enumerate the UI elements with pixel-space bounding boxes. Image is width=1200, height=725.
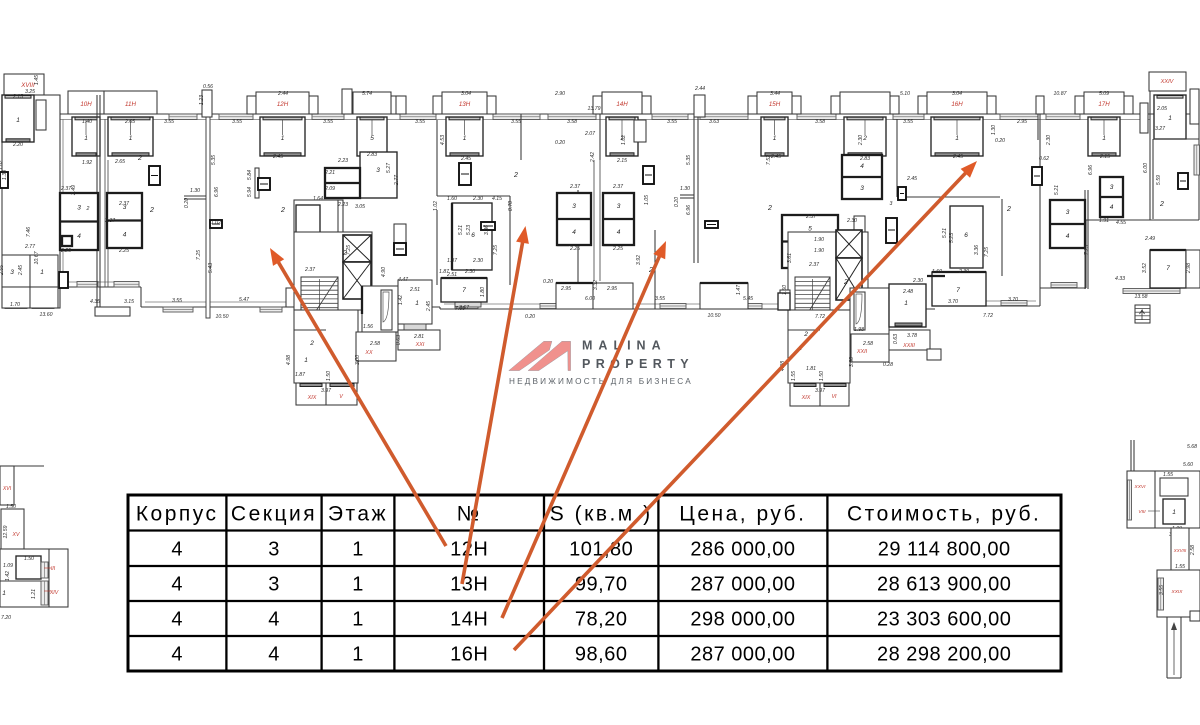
svg-text:1.80: 1.80 — [480, 287, 486, 297]
svg-text:1.81: 1.81 — [806, 366, 816, 372]
svg-text:Цена, руб.: Цена, руб. — [679, 502, 806, 525]
svg-text:4.15: 4.15 — [492, 196, 502, 202]
svg-text:3.55: 3.55 — [323, 119, 333, 125]
svg-text:1: 1 — [1102, 135, 1106, 142]
svg-text:4: 4 — [171, 574, 183, 596]
svg-text:12.59: 12.59 — [3, 525, 9, 538]
svg-text:2.58: 2.58 — [369, 341, 380, 347]
svg-text:4: 4 — [268, 609, 280, 631]
svg-text:1: 1 — [1168, 115, 1172, 122]
svg-text:1.23: 1.23 — [199, 95, 205, 105]
svg-text:2.45: 2.45 — [18, 265, 24, 276]
svg-text:2.25: 2.25 — [60, 248, 71, 254]
svg-text:3.05: 3.05 — [355, 204, 365, 210]
svg-text:3.55: 3.55 — [415, 119, 425, 125]
svg-text:3.78: 3.78 — [907, 333, 917, 339]
svg-text:2.15: 2.15 — [616, 158, 627, 164]
svg-text:4: 4 — [171, 538, 183, 560]
svg-text:5.21: 5.21 — [942, 228, 948, 238]
svg-text:1: 1 — [463, 135, 467, 142]
svg-text:5.21: 5.21 — [458, 225, 464, 235]
svg-text:1: 1 — [955, 135, 959, 142]
svg-text:0.63: 0.63 — [893, 334, 899, 344]
svg-text:2.37: 2.37 — [612, 184, 624, 190]
svg-text:2.65: 2.65 — [114, 159, 125, 165]
svg-text:4: 4 — [860, 163, 864, 170]
svg-text:7.72: 7.72 — [815, 314, 825, 320]
svg-text:1.87: 1.87 — [447, 258, 458, 264]
svg-text:1.60: 1.60 — [447, 196, 457, 202]
svg-text:10.50: 10.50 — [216, 314, 229, 320]
svg-text:7: 7 — [956, 287, 960, 294]
svg-text:5.23: 5.23 — [949, 233, 955, 243]
svg-text:1.45: 1.45 — [34, 75, 40, 85]
svg-text:3.70: 3.70 — [1008, 297, 1018, 303]
svg-text:1: 1 — [2, 590, 6, 597]
svg-text:10.87: 10.87 — [1054, 91, 1068, 97]
svg-text:1.30: 1.30 — [680, 186, 690, 192]
svg-text:1.42: 1.42 — [5, 571, 11, 581]
svg-text:2.30: 2.30 — [912, 278, 923, 284]
svg-text:7.25: 7.25 — [1084, 245, 1090, 255]
svg-text:5.60: 5.60 — [1183, 462, 1193, 468]
svg-text:7: 7 — [1166, 265, 1170, 272]
svg-text:3.00: 3.00 — [849, 357, 855, 367]
svg-text:10.67: 10.67 — [34, 250, 40, 264]
svg-text:2.30: 2.30 — [858, 135, 864, 146]
svg-text:5.27: 5.27 — [386, 162, 392, 173]
svg-text:XVIII: XVIII — [20, 82, 35, 89]
svg-text:0.20: 0.20 — [995, 138, 1005, 144]
svg-text:1.50: 1.50 — [24, 556, 34, 562]
svg-text:0.20: 0.20 — [674, 197, 680, 207]
svg-text:3.55: 3.55 — [232, 119, 242, 125]
svg-text:5.21: 5.21 — [1054, 185, 1060, 195]
svg-text:1.50: 1.50 — [782, 285, 788, 295]
svg-text:1: 1 — [352, 644, 364, 666]
svg-text:2.77: 2.77 — [24, 244, 36, 250]
svg-text:5.47: 5.47 — [239, 297, 250, 303]
svg-text:XIX: XIX — [801, 395, 811, 401]
svg-text:2.21: 2.21 — [324, 170, 335, 176]
svg-text:2: 2 — [137, 155, 142, 162]
svg-text:3.55: 3.55 — [511, 119, 521, 125]
svg-text:3.27: 3.27 — [1155, 126, 1166, 132]
svg-text:1.02: 1.02 — [621, 135, 627, 145]
svg-text:1.05: 1.05 — [644, 195, 650, 205]
svg-text:2.45: 2.45 — [906, 176, 917, 182]
svg-text:VI: VI — [831, 394, 837, 400]
svg-text:2.58: 2.58 — [1190, 545, 1196, 556]
svg-text:4: 4 — [171, 644, 183, 666]
svg-text:2.30: 2.30 — [472, 196, 483, 202]
svg-text:2.81: 2.81 — [413, 334, 424, 340]
svg-text:78,20: 78,20 — [575, 609, 628, 631]
svg-text:5.94: 5.94 — [247, 187, 253, 197]
svg-text:4.35: 4.35 — [90, 299, 100, 305]
svg-text:6: 6 — [964, 232, 968, 239]
svg-text:14Н: 14Н — [616, 101, 628, 108]
svg-text:2: 2 — [309, 340, 314, 347]
svg-text:7.72: 7.72 — [983, 313, 993, 319]
svg-text:2.45: 2.45 — [460, 156, 471, 162]
svg-text:1.50: 1.50 — [326, 371, 332, 381]
svg-text:23 303 600,00: 23 303 600,00 — [877, 609, 1011, 631]
svg-text:7: 7 — [462, 287, 466, 294]
svg-text:1: 1 — [84, 135, 88, 142]
svg-text:XVI: XVI — [2, 486, 12, 492]
svg-text:14Н: 14Н — [450, 609, 488, 631]
svg-text:287 000,00: 287 000,00 — [690, 574, 795, 596]
svg-text:2: 2 — [1159, 201, 1164, 208]
svg-text:4: 4 — [1110, 204, 1114, 211]
svg-text:2.45: 2.45 — [770, 154, 781, 160]
svg-text:4: 4 — [171, 609, 183, 631]
svg-text:1.91: 1.91 — [1099, 218, 1109, 224]
svg-text:2.77: 2.77 — [394, 174, 400, 186]
svg-text:1.70: 1.70 — [10, 302, 20, 308]
svg-text:XXVIII: XXVIII — [1173, 548, 1187, 553]
svg-text:28 298 200,00: 28 298 200,00 — [877, 644, 1011, 666]
svg-text:3.04: 3.04 — [952, 91, 962, 97]
svg-text:6.96: 6.96 — [214, 187, 220, 197]
svg-text:3: 3 — [860, 185, 864, 192]
svg-text:2: 2 — [803, 331, 808, 338]
svg-text:5: 5 — [370, 135, 374, 142]
svg-text:3.55: 3.55 — [164, 119, 174, 125]
svg-text:2.37: 2.37 — [304, 267, 316, 273]
svg-text:1: 1 — [415, 300, 419, 307]
svg-text:2.09: 2.09 — [324, 186, 335, 192]
svg-text:3.36: 3.36 — [484, 225, 490, 235]
svg-text:10Н: 10Н — [80, 101, 92, 108]
svg-text:3: 3 — [268, 574, 280, 596]
svg-text:4: 4 — [77, 233, 81, 240]
svg-text:2: 2 — [513, 172, 518, 179]
svg-text:5.35: 5.35 — [686, 155, 692, 165]
svg-text:7.25: 7.25 — [493, 245, 499, 255]
svg-text:2.30: 2.30 — [1046, 135, 1052, 146]
svg-text:2.25: 2.25 — [569, 246, 580, 252]
svg-text:0.20: 0.20 — [184, 198, 190, 208]
svg-text:3.55: 3.55 — [1159, 585, 1165, 595]
svg-text:0.62: 0.62 — [1039, 156, 1049, 162]
svg-text:Секция: Секция — [231, 502, 317, 525]
svg-text:4: 4 — [268, 644, 280, 666]
svg-text:7.46: 7.46 — [26, 227, 32, 237]
svg-text:2.90: 2.90 — [554, 91, 565, 97]
svg-text:XX: XX — [364, 350, 373, 356]
svg-text:2.83: 2.83 — [859, 156, 870, 162]
svg-text:3: 3 — [1110, 184, 1114, 191]
svg-text:3.55: 3.55 — [655, 296, 665, 302]
svg-text:2.25: 2.25 — [612, 246, 623, 252]
svg-text:0.56: 0.56 — [203, 84, 213, 90]
svg-text:XXIV: XXIV — [1160, 79, 1175, 85]
svg-text:2.49: 2.49 — [71, 185, 77, 196]
svg-text:2.95: 2.95 — [1016, 119, 1027, 125]
svg-text:3: 3 — [572, 203, 576, 210]
svg-text:2: 2 — [86, 206, 90, 212]
svg-text:4.47: 4.47 — [398, 277, 409, 283]
svg-text:XXIX: XXIX — [1171, 589, 1184, 595]
svg-text:29 114 800,00: 29 114 800,00 — [878, 538, 1011, 560]
svg-text:1: 1 — [1172, 509, 1176, 516]
svg-text:1.50: 1.50 — [819, 371, 825, 381]
svg-text:2.30: 2.30 — [958, 269, 969, 275]
svg-text:1.38: 1.38 — [2, 170, 8, 180]
svg-text:2.37: 2.37 — [60, 186, 72, 192]
svg-text:4.33: 4.33 — [1115, 276, 1125, 282]
svg-text:0.20: 0.20 — [543, 279, 553, 285]
svg-text:4.90: 4.90 — [381, 267, 387, 277]
svg-text:1.87: 1.87 — [295, 372, 306, 378]
svg-text:5.43: 5.43 — [208, 263, 214, 273]
svg-text:287 000,00: 287 000,00 — [690, 644, 795, 666]
svg-text:2.44: 2.44 — [277, 91, 288, 97]
svg-text:3.15: 3.15 — [124, 299, 134, 305]
svg-text:3: 3 — [890, 201, 893, 207]
svg-text:4: 4 — [123, 231, 127, 238]
svg-text:28 613 900,00: 28 613 900,00 — [877, 574, 1011, 596]
svg-text:2.95: 2.95 — [560, 286, 571, 292]
svg-text:2.58: 2.58 — [862, 341, 873, 347]
svg-text:2.55: 2.55 — [0, 265, 5, 276]
svg-text:3.55: 3.55 — [172, 298, 182, 304]
svg-text:XXIII: XXIII — [902, 343, 915, 349]
svg-text:1: 1 — [352, 609, 364, 631]
svg-text:3.25: 3.25 — [25, 89, 35, 95]
svg-text:12Н: 12Н — [277, 101, 289, 108]
svg-text:5.45: 5.45 — [743, 296, 753, 302]
svg-text:1.02: 1.02 — [433, 201, 439, 211]
svg-text:2.45: 2.45 — [272, 154, 283, 160]
svg-text:2: 2 — [843, 279, 848, 286]
svg-text:2.37: 2.37 — [569, 184, 581, 190]
svg-text:2.15: 2.15 — [1099, 154, 1110, 160]
svg-text:1: 1 — [281, 135, 285, 142]
svg-text:III: III — [51, 566, 56, 572]
svg-text:НЕДВИЖИМОСТЬ ДЛЯ БИЗНЕСА: НЕДВИЖИМОСТЬ ДЛЯ БИЗНЕСА — [509, 377, 693, 386]
svg-text:2.15: 2.15 — [12, 94, 23, 100]
svg-text:2.45: 2.45 — [952, 154, 963, 160]
svg-text:2.23: 2.23 — [337, 158, 348, 164]
svg-text:2: 2 — [1006, 206, 1011, 213]
svg-text:2.20: 2.20 — [12, 142, 23, 148]
svg-text:2.37: 2.37 — [118, 201, 130, 207]
svg-text:3: 3 — [1066, 209, 1070, 216]
svg-text:2.65: 2.65 — [124, 119, 135, 125]
svg-text:3.52: 3.52 — [1142, 263, 1148, 273]
svg-text:3.36: 3.36 — [974, 245, 980, 255]
svg-text:2.49: 2.49 — [1144, 236, 1155, 242]
svg-text:1.55: 1.55 — [1175, 564, 1185, 570]
svg-text:XXI: XXI — [415, 342, 425, 348]
svg-text:13.60: 13.60 — [40, 312, 53, 318]
svg-text:4: 4 — [617, 229, 621, 236]
svg-text:2.25: 2.25 — [118, 248, 129, 254]
svg-text:1.56: 1.56 — [363, 324, 373, 330]
svg-text:2.83: 2.83 — [366, 152, 377, 158]
svg-text:6.96: 6.96 — [1088, 165, 1094, 175]
svg-text:3.55: 3.55 — [667, 119, 677, 125]
svg-text:1: 1 — [773, 135, 777, 142]
svg-text:VIII: VIII — [1138, 509, 1146, 515]
svg-text:1.55: 1.55 — [791, 371, 797, 381]
svg-text:1.62: 1.62 — [0, 160, 4, 170]
svg-text:4.98: 4.98 — [286, 355, 292, 365]
svg-text:6.00: 6.00 — [585, 296, 595, 302]
svg-text:98,60: 98,60 — [575, 644, 628, 666]
svg-text:1.47: 1.47 — [736, 284, 742, 295]
svg-text:5.23: 5.23 — [466, 225, 472, 235]
svg-text:15Н: 15Н — [769, 101, 781, 108]
svg-text:3.61: 3.61 — [787, 253, 793, 263]
svg-text:3: 3 — [376, 167, 380, 174]
svg-text:Этаж: Этаж — [328, 502, 388, 525]
svg-text:7.25: 7.25 — [196, 250, 202, 260]
svg-text:4.55: 4.55 — [1116, 220, 1126, 226]
svg-text:1.92: 1.92 — [82, 160, 92, 166]
svg-text:3.55: 3.55 — [903, 119, 913, 125]
svg-text:7.69: 7.69 — [455, 306, 465, 312]
svg-text:2.42: 2.42 — [590, 152, 596, 163]
svg-text:3.44: 3.44 — [770, 91, 780, 97]
svg-text:6.96: 6.96 — [686, 205, 692, 215]
svg-text:2.44: 2.44 — [694, 86, 705, 92]
svg-text:1: 1 — [40, 269, 44, 276]
svg-text:2.30: 2.30 — [472, 258, 483, 264]
svg-text:1.30: 1.30 — [991, 125, 997, 135]
svg-text:2.51: 2.51 — [409, 287, 420, 293]
svg-text:3.58: 3.58 — [815, 119, 825, 125]
svg-text:PROPERTY: PROPERTY — [582, 357, 694, 371]
svg-text:Стоимость, руб.: Стоимость, руб. — [847, 502, 1041, 525]
svg-text:3.04: 3.04 — [461, 91, 471, 97]
svg-text:1.02: 1.02 — [211, 220, 221, 226]
svg-text:2: 2 — [280, 207, 285, 214]
svg-text:2.45: 2.45 — [426, 301, 432, 312]
svg-text:1.90: 1.90 — [814, 237, 824, 243]
svg-text:16Н: 16Н — [450, 644, 488, 666]
svg-text:6.00: 6.00 — [1143, 163, 1149, 173]
svg-text:2.51: 2.51 — [446, 272, 457, 278]
svg-text:3.97: 3.97 — [815, 388, 826, 394]
svg-text:2.23: 2.23 — [337, 202, 348, 208]
svg-text:2.37: 2.37 — [808, 262, 820, 268]
svg-text:2.37: 2.37 — [805, 214, 817, 220]
svg-text:5.10: 5.10 — [900, 91, 910, 97]
svg-text:0.20: 0.20 — [555, 140, 565, 146]
svg-text:1.90: 1.90 — [814, 248, 824, 254]
svg-text:5.59: 5.59 — [1156, 175, 1162, 185]
svg-text:13Н: 13Н — [459, 101, 471, 108]
svg-text:5.74: 5.74 — [362, 91, 372, 97]
svg-text:7.20: 7.20 — [1, 615, 11, 621]
svg-text:XV: XV — [12, 532, 20, 538]
svg-text:4: 4 — [1066, 233, 1070, 240]
svg-text:1.09: 1.09 — [3, 563, 13, 569]
svg-text:3.70: 3.70 — [948, 299, 958, 305]
svg-text:1.55: 1.55 — [1163, 472, 1173, 478]
svg-text:2: 2 — [342, 250, 347, 257]
svg-text:1: 1 — [904, 300, 908, 307]
svg-text:1.98: 1.98 — [854, 327, 864, 333]
svg-text:2: 2 — [767, 205, 772, 212]
svg-text:2.98: 2.98 — [1186, 263, 1192, 274]
svg-text:0.63: 0.63 — [396, 335, 402, 345]
svg-text:1.42: 1.42 — [398, 295, 404, 305]
svg-text:0.28: 0.28 — [883, 362, 893, 368]
svg-text:3.92: 3.92 — [636, 255, 642, 265]
svg-text:1.21: 1.21 — [31, 589, 37, 599]
svg-text:7.25: 7.25 — [984, 247, 990, 257]
svg-text:3: 3 — [77, 204, 81, 211]
svg-text:3.97: 3.97 — [321, 388, 332, 394]
svg-text:3: 3 — [268, 538, 280, 560]
svg-text:13Н: 13Н — [450, 574, 488, 596]
svg-text:1: 1 — [352, 538, 364, 560]
svg-text:1: 1 — [129, 135, 133, 142]
svg-text:13.79: 13.79 — [588, 106, 601, 112]
svg-text:Корпус: Корпус — [136, 502, 219, 525]
svg-text:17Н: 17Н — [1098, 101, 1110, 108]
svg-text:4.53: 4.53 — [440, 135, 446, 145]
svg-text:13.58: 13.58 — [1135, 294, 1148, 300]
svg-text:0.70: 0.70 — [508, 201, 514, 211]
svg-text:XXII: XXII — [856, 349, 868, 355]
svg-text:3.00: 3.00 — [355, 355, 361, 365]
svg-text:3: 3 — [10, 269, 14, 276]
svg-text:286 000,00: 286 000,00 — [690, 538, 795, 560]
svg-text:XXVI: XXVI — [1134, 484, 1147, 490]
svg-text:1.60: 1.60 — [932, 269, 942, 275]
svg-text:2.37: 2.37 — [104, 218, 116, 224]
svg-text:2.05: 2.05 — [1156, 106, 1167, 112]
svg-text:10.50: 10.50 — [708, 313, 721, 319]
svg-text:4: 4 — [572, 229, 576, 236]
svg-text:1: 1 — [304, 357, 308, 364]
svg-text:1.30: 1.30 — [190, 188, 200, 194]
svg-text:2.95: 2.95 — [606, 286, 617, 292]
svg-text:XIX: XIX — [307, 395, 317, 401]
svg-text:3.58: 3.58 — [567, 119, 577, 125]
svg-text:5.09: 5.09 — [1099, 91, 1109, 97]
svg-text:1.64: 1.64 — [313, 196, 323, 202]
svg-text:11Н: 11Н — [125, 101, 136, 108]
svg-text:1.40: 1.40 — [82, 119, 92, 125]
svg-text:298 000,00: 298 000,00 — [690, 609, 795, 631]
svg-text:5.35: 5.35 — [211, 155, 217, 165]
svg-text:3.63: 3.63 — [709, 119, 719, 125]
svg-text:№: № — [457, 502, 482, 525]
svg-text:3.32: 3.32 — [593, 280, 599, 290]
svg-text:2.48: 2.48 — [902, 289, 913, 295]
svg-text:16Н: 16Н — [951, 101, 963, 108]
svg-text:5: 5 — [808, 225, 812, 232]
svg-text:2: 2 — [149, 207, 154, 214]
svg-text:5.68: 5.68 — [1187, 444, 1197, 450]
svg-text:1: 1 — [352, 574, 364, 596]
svg-text:2.07: 2.07 — [584, 131, 596, 137]
svg-text:3: 3 — [617, 203, 621, 210]
svg-text:2.30: 2.30 — [846, 218, 857, 224]
svg-text:0.20: 0.20 — [525, 314, 535, 320]
svg-text:2.30: 2.30 — [464, 269, 475, 275]
svg-text:5.84: 5.84 — [247, 170, 253, 180]
svg-text:1: 1 — [16, 117, 20, 124]
